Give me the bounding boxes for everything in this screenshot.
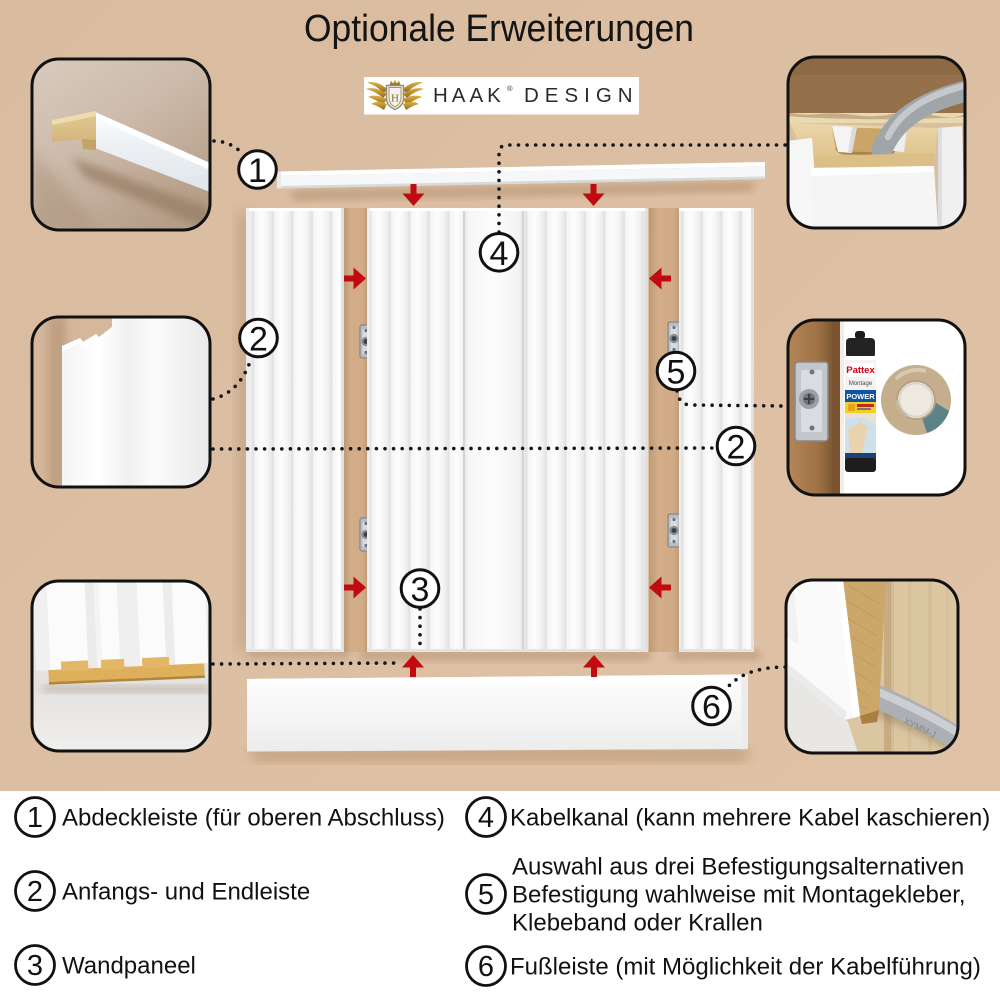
svg-text:Pattex: Pattex [846,365,875,376]
svg-text:6: 6 [478,951,494,983]
svg-text:Kabelkanal (kann mehrere Kabel: Kabelkanal (kann mehrere Kabel kaschiere… [510,805,990,832]
svg-text:Auswahl aus drei Befestigungsa: Auswahl aus drei Befestigungsalternative… [512,854,964,881]
svg-text:5: 5 [667,354,686,392]
svg-text:Klebeband oder Krallen: Klebeband oder Krallen [512,910,763,937]
svg-text:Optionale Erweiterungen: Optionale Erweiterungen [304,8,694,50]
svg-text:POWER: POWER [846,392,875,401]
svg-text:Fußleiste (mit Möglichkeit der: Fußleiste (mit Möglichkeit der Kabelführ… [510,954,981,981]
svg-text:Anfangs- und Endleiste: Anfangs- und Endleiste [62,879,310,906]
svg-text:2: 2 [27,876,43,908]
svg-text:2: 2 [727,429,746,467]
svg-text:®: ® [507,84,513,93]
svg-text:1: 1 [248,152,267,190]
svg-text:DESIGN: DESIGN [524,84,639,107]
svg-text:1: 1 [27,802,43,834]
svg-text:Wandpaneel: Wandpaneel [62,953,196,980]
svg-text:4: 4 [478,802,494,834]
svg-text:Befestigung wahlweise mit Mont: Befestigung wahlweise mit Montagekleber, [512,882,966,909]
svg-text:Montage: Montage [849,381,873,387]
svg-text:2: 2 [249,321,268,359]
svg-text:Abdeckleiste (für oberen Absch: Abdeckleiste (für oberen Abschluss) [62,805,445,832]
svg-text:H: H [391,93,399,105]
svg-text:HAAK: HAAK [433,84,505,107]
svg-text:3: 3 [27,950,43,982]
svg-text:6: 6 [702,689,721,727]
svg-text:4: 4 [490,235,509,273]
svg-text:3: 3 [411,571,430,609]
svg-text:5: 5 [478,879,494,911]
